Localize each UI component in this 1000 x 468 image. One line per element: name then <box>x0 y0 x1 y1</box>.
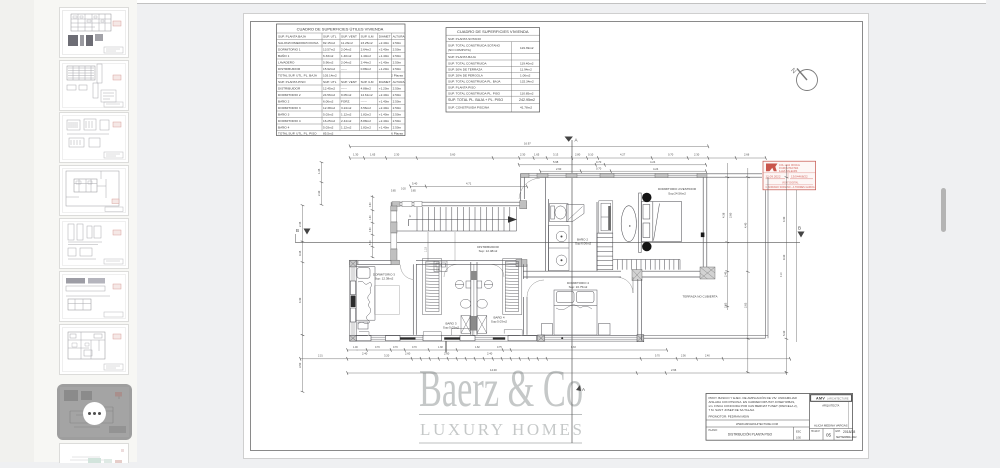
svg-text:+2.40m: +2.40m <box>379 119 390 123</box>
svg-text:A: A <box>582 387 585 392</box>
svg-text:SUP. UTL: SUP. UTL <box>323 80 337 84</box>
svg-text:SUP. TOTAL CONSTRUIDA SOTANO: SUP. TOTAL CONSTRUIDA SOTANO <box>448 44 501 48</box>
svg-text:5.30: 5.30 <box>782 330 786 336</box>
svg-text:2.50m: 2.50m <box>393 113 402 117</box>
svg-text:6.33m2: 6.33m2 <box>323 54 334 58</box>
svg-text:11.23m2: 11.23m2 <box>341 41 353 45</box>
svg-text:+1.20m: +1.20m <box>379 67 390 71</box>
svg-text:4.88m2: 4.88m2 <box>361 87 372 91</box>
svg-text:Sup: 12.38m2: Sup: 12.38m2 <box>375 277 394 281</box>
svg-text:13/04468/22: 13/04468/22 <box>791 175 808 179</box>
svg-text:0.40: 0.40 <box>370 202 372 207</box>
svg-text:TERRAZA NO CUBIERTA: TERRAZA NO CUBIERTA <box>683 295 718 299</box>
svg-text:DORMITORIO 4: DORMITORIO 4 <box>278 119 301 123</box>
svg-text:0.70: 0.70 <box>596 160 602 164</box>
svg-text:SUP. CONSTRUIDA PISCINA: SUP. CONSTRUIDA PISCINA <box>448 106 490 110</box>
svg-text:LUXURY HOMES: LUXURY HOMES <box>420 420 582 439</box>
svg-text:13.57m2: 13.57m2 <box>323 48 335 52</box>
svg-text:2.04m2: 2.04m2 <box>341 61 352 65</box>
svg-text:EXP.: EXP. <box>836 431 841 433</box>
svg-text:AMV: AMV <box>816 397 825 401</box>
svg-text:0.10: 0.10 <box>588 153 594 157</box>
svg-text:+1.40m: +1.40m <box>379 113 390 117</box>
svg-text:2.30: 2.30 <box>694 153 700 157</box>
svg-text:SUP. UTL: SUP. UTL <box>323 35 337 39</box>
svg-text:DORMITORIO 1: DORMITORIO 1 <box>278 48 301 52</box>
svg-text:4.71: 4.71 <box>466 181 472 185</box>
svg-text:------: ------ <box>341 67 347 71</box>
svg-text:9.05m2: 9.05m2 <box>341 93 352 97</box>
svg-text:103.14m2: 103.14m2 <box>323 74 337 78</box>
svg-text:DISTRIBUCIÓN PLANTA PISO: DISTRIBUCIÓN PLANTA PISO <box>728 432 773 437</box>
svg-text:2.50m: 2.50m <box>393 106 402 110</box>
svg-text:BAÑO 3: BAÑO 3 <box>278 112 290 117</box>
svg-text:11.94m2: 11.94m2 <box>520 68 532 72</box>
svg-text:2.40: 2.40 <box>724 271 728 277</box>
svg-text:C.SORIANO SORIANO - A.TORRES G: C.SORIANO SORIANO - A.TORRES GARCIA <box>766 186 816 189</box>
svg-text:5.03m2: 5.03m2 <box>323 126 334 130</box>
svg-text:Sup:6.06m2: Sup:6.06m2 <box>575 242 592 246</box>
svg-text:Baerz & Co: Baerz & Co <box>419 360 583 418</box>
svg-text:0.20: 0.20 <box>401 188 406 191</box>
svg-text:5.85: 5.85 <box>391 190 396 193</box>
svg-text:2.50m: 2.50m <box>393 61 402 65</box>
svg-text:5.40: 5.40 <box>370 240 372 245</box>
svg-text:2.63: 2.63 <box>744 302 748 308</box>
svg-text:2.96: 2.96 <box>671 368 677 372</box>
svg-text:16.97: 16.97 <box>524 142 531 146</box>
svg-text:SUP. TOTAL CONSTRUIDA: SUP. TOTAL CONSTRUIDA <box>448 61 487 65</box>
svg-text:2.44m2: 2.44m2 <box>341 119 352 123</box>
svg-text:0.35: 0.35 <box>298 250 302 256</box>
svg-text:------: ------ <box>341 87 347 91</box>
svg-text:1.35: 1.35 <box>317 168 321 174</box>
svg-text:0.70: 0.70 <box>393 346 398 349</box>
svg-text:2.50m: 2.50m <box>393 126 402 130</box>
svg-text:5.03m2: 5.03m2 <box>323 113 334 117</box>
svg-text:ALTURA: ALTURA <box>393 35 406 39</box>
svg-text:119.40m2: 119.40m2 <box>520 61 534 65</box>
svg-text:2.50m: 2.50m <box>393 87 402 91</box>
svg-text:8.88m2: 8.88m2 <box>361 119 372 123</box>
svg-text:PLANO:: PLANO: <box>709 429 718 432</box>
svg-text:4.40: 4.40 <box>744 222 748 228</box>
svg-text:B: B <box>798 226 801 231</box>
svg-text:4.38: 4.38 <box>722 212 726 218</box>
svg-text:8.33: 8.33 <box>571 346 576 349</box>
svg-text:14.61m2: 14.61m2 <box>361 93 373 97</box>
svg-text:N: N <box>789 67 797 75</box>
svg-text:WWW.AMVARCHITECTURE.COM: WWW.AMVARCHITECTURE.COM <box>736 422 779 426</box>
svg-text:Sup: 12.48m2: Sup: 12.48m2 <box>479 249 498 253</box>
svg-text:2 Plazas: 2 Plazas <box>391 74 403 78</box>
svg-text:SUP. PLANTA PISO: SUP. PLANTA PISO <box>448 86 476 90</box>
svg-text:2.63: 2.63 <box>724 302 728 308</box>
svg-text:2.80: 2.80 <box>575 153 581 157</box>
svg-text:242.95m2: 242.95m2 <box>519 98 535 102</box>
svg-text:1/50: 1/50 <box>796 436 801 439</box>
svg-text:A: A <box>575 138 578 143</box>
svg-text:ALICIA MEDINA VARGAS: ALICIA MEDINA VARGAS <box>814 424 848 428</box>
svg-text:DORMITORIO 2/VESTIDOR: DORMITORIO 2/VESTIDOR <box>658 187 697 191</box>
svg-text:17: 17 <box>408 214 412 217</box>
svg-text:DORMITORIO 2: DORMITORIO 2 <box>278 93 301 97</box>
svg-text:2.45: 2.45 <box>298 221 302 227</box>
svg-text:1.12m2: 1.12m2 <box>341 126 352 130</box>
svg-text:2.60: 2.60 <box>444 352 450 356</box>
svg-text:Sup: 16.75m2: Sup: 16.75m2 <box>569 285 588 289</box>
svg-text:CUADRO DE SUPERFICIES ÚTILES V: CUADRO DE SUPERFICIES ÚTILES VIVIENDA <box>297 27 384 32</box>
svg-text:4.40: 4.40 <box>298 297 302 303</box>
svg-text:BAÑO 1: BAÑO 1 <box>278 53 290 58</box>
svg-text:2.50m: 2.50m <box>393 67 402 71</box>
svg-text:SUP. TOTAL CONSTRUIDA PL. PISO: SUP. TOTAL CONSTRUIDA PL. PISO <box>448 92 501 96</box>
svg-text:1.82m2: 1.82m2 <box>361 126 372 130</box>
svg-text:4.27: 4.27 <box>620 153 626 157</box>
svg-text:(NO COMPUTA): (NO COMPUTA) <box>448 48 471 52</box>
svg-text:2.30: 2.30 <box>317 190 321 196</box>
svg-text:132.34m2: 132.34m2 <box>520 80 534 84</box>
svg-text:2.60: 2.60 <box>729 212 733 218</box>
svg-text:15.92m2: 15.92m2 <box>323 67 335 71</box>
svg-text:1.00: 1.00 <box>353 346 358 349</box>
svg-text:SUP. ILM: SUP. ILM <box>361 80 374 84</box>
svg-text:0.10: 0.10 <box>781 272 783 277</box>
svg-text:SALON/COMEDOR/COCINA: SALON/COMEDOR/COCINA <box>278 41 319 45</box>
svg-text:2.40: 2.40 <box>362 352 368 356</box>
svg-text:4.24: 4.24 <box>650 160 656 164</box>
svg-text:SUP. TOTAL CONSTRUIDA PL. BAJA: SUP. TOTAL CONSTRUIDA PL. BAJA <box>448 80 501 84</box>
svg-text:SUP. 20% DE PERGOLA: SUP. 20% DE PERGOLA <box>448 74 484 78</box>
svg-text:SUP. VENT: SUP. VENT <box>341 80 357 84</box>
svg-text:SUP. PLANTA SOTANO: SUP. PLANTA SOTANO <box>448 37 482 41</box>
svg-text:2.64m2: 2.64m2 <box>361 48 372 52</box>
svg-text:2.50m: 2.50m <box>393 54 402 58</box>
svg-text:85.5m2: 85.5m2 <box>323 132 334 136</box>
svg-text:2.31: 2.31 <box>318 355 323 358</box>
svg-text:2.60: 2.60 <box>556 167 562 171</box>
svg-text:2018/28: 2018/28 <box>843 430 855 434</box>
svg-text:B: B <box>296 228 299 233</box>
svg-text:2.04m2: 2.04m2 <box>341 48 352 52</box>
svg-text:12.38m2: 12.38m2 <box>323 106 335 110</box>
svg-text:Sup:5.03m2: Sup:5.03m2 <box>491 320 508 324</box>
svg-text:1.10: 1.10 <box>425 247 428 252</box>
svg-text:1.40m2: 1.40m2 <box>341 54 352 58</box>
svg-text:0.75: 0.75 <box>497 346 502 349</box>
svg-text:DORMITORIO 3: DORMITORIO 3 <box>278 106 301 110</box>
svg-text:+1.40m: +1.40m <box>379 126 390 130</box>
svg-text:82.15m2: 82.15m2 <box>323 41 335 45</box>
svg-text:4.24: 4.24 <box>653 167 659 171</box>
svg-text:CSL: CSL <box>436 269 441 272</box>
svg-text:3.50: 3.50 <box>298 362 302 368</box>
svg-text:5.85: 5.85 <box>411 190 416 193</box>
svg-text:12.45m2: 12.45m2 <box>323 87 335 91</box>
svg-text:+2.40m: +2.40m <box>379 41 390 45</box>
svg-text:+1.40m: +1.40m <box>379 54 390 58</box>
svg-text:+2.40m: +2.40m <box>379 93 390 97</box>
svg-text:3.13: 3.13 <box>553 153 559 157</box>
svg-text:5.60: 5.60 <box>450 153 456 157</box>
svg-text:2.50m: 2.50m <box>393 100 402 104</box>
svg-text:SEPTIEMBRE 2022: SEPTIEMBRE 2022 <box>836 437 857 439</box>
svg-text:1.06m2: 1.06m2 <box>520 74 531 78</box>
svg-text:ESC: ESC <box>796 430 801 433</box>
svg-text:3.20: 3.20 <box>384 354 390 358</box>
svg-text:SUP. PLANTA BAJA: SUP. PLANTA BAJA <box>278 35 307 39</box>
svg-text:| ARCHITECTURE: | ARCHITECTURE <box>827 396 849 400</box>
svg-text:+1.40m: +1.40m <box>379 100 390 104</box>
svg-text:DISTRIBUIDOR: DISTRIBUIDOR <box>278 87 301 91</box>
svg-text:14.00: 14.00 <box>490 368 497 372</box>
svg-text:+1.20m: +1.20m <box>379 87 390 91</box>
svg-text:Sup:24.56m2: Sup:24.56m2 <box>668 192 686 196</box>
svg-text:2.60: 2.60 <box>405 352 411 356</box>
svg-text:1.38: 1.38 <box>438 346 443 349</box>
svg-text:0.70: 0.70 <box>375 346 380 349</box>
svg-text:23.25m2: 23.25m2 <box>361 41 373 45</box>
svg-text:119.39m2: 119.39m2 <box>520 46 534 50</box>
svg-text:2.50m: 2.50m <box>393 48 402 52</box>
svg-text:5.96m2: 5.96m2 <box>323 61 334 65</box>
svg-text:1.40: 1.40 <box>370 215 372 220</box>
svg-text:2.50m: 2.50m <box>393 93 402 97</box>
svg-text:05: 05 <box>826 433 832 438</box>
svg-text:7 M. SANT JOSEP DE SA TALAIA: 7 M. SANT JOSEP DE SA TALAIA <box>709 408 755 412</box>
svg-text:0.88m2: 0.88m2 <box>361 67 372 71</box>
svg-text:5.70: 5.70 <box>655 355 660 358</box>
svg-text:2.40: 2.40 <box>705 355 710 358</box>
svg-text:2.44m2: 2.44m2 <box>361 61 372 65</box>
svg-text:FORZ.: FORZ. <box>341 100 350 104</box>
svg-text:1.12m2: 1.12m2 <box>341 113 352 117</box>
svg-text:41.78m2: 41.78m2 <box>520 106 532 110</box>
svg-text:2.56: 2.56 <box>681 355 686 358</box>
svg-text:4.40: 4.40 <box>782 216 786 222</box>
svg-text:3.56m2: 3.56m2 <box>361 106 372 110</box>
svg-text:1.40m2: 1.40m2 <box>361 54 372 58</box>
svg-text:1.65: 1.65 <box>534 153 540 157</box>
svg-text:110.85m2: 110.85m2 <box>520 92 534 96</box>
svg-text:PROMOTOR: PEDRAM MDIN: PROMOTOR: PEDRAM MDIN <box>709 415 750 419</box>
svg-text:BAÑO 2: BAÑO 2 <box>278 99 290 104</box>
svg-text:2.40: 2.40 <box>487 352 493 356</box>
svg-text:DIAMET: DIAMET <box>379 80 391 84</box>
svg-text:0.70: 0.70 <box>412 346 417 349</box>
svg-text:5.98: 5.98 <box>553 160 559 164</box>
svg-text:0.70: 0.70 <box>668 153 674 157</box>
svg-text:SUP. TOTAL PL. BAJA + PL. PISO: SUP. TOTAL PL. BAJA + PL. PISO <box>448 98 503 102</box>
svg-text:TOTAL SUP. UTL. PL. PISO: TOTAL SUP. UTL. PL. PISO <box>278 132 317 136</box>
svg-text:1.82m2: 1.82m2 <box>361 113 372 117</box>
svg-text:DISTRIBUIDOR: DISTRIBUIDOR <box>278 67 301 71</box>
svg-text:2.50m: 2.50m <box>393 119 402 123</box>
svg-text:SUP. PLANTA PISO: SUP. PLANTA PISO <box>278 80 306 84</box>
svg-text:CUADRO DE SUPERFICIES VIVIENDA: CUADRO DE SUPERFICIES VIVIENDA <box>457 29 529 34</box>
svg-text:1.82: 1.82 <box>475 346 480 349</box>
svg-text:2.66: 2.66 <box>744 153 750 157</box>
svg-text:BAÑO 4: BAÑO 4 <box>278 125 290 130</box>
svg-text:------: ------ <box>361 100 367 104</box>
svg-text:SUP. PLANTA BAJA: SUP. PLANTA BAJA <box>448 55 477 59</box>
svg-text:16.25m2: 16.25m2 <box>323 119 335 123</box>
svg-text:ALTURA: ALTURA <box>393 80 406 84</box>
svg-text:+2.40m: +2.40m <box>379 106 390 110</box>
svg-text:0.70: 0.70 <box>596 166 602 170</box>
svg-text:+1.40m: +1.40m <box>379 61 390 65</box>
svg-text:3.24m2: 3.24m2 <box>341 106 352 110</box>
svg-text:0.40: 0.40 <box>370 227 372 232</box>
svg-text:24.56m2: 24.56m2 <box>323 93 335 97</box>
svg-text:9.30: 9.30 <box>782 254 786 260</box>
svg-text:LAVADERO: LAVADERO <box>278 61 295 65</box>
svg-text:1.65: 1.65 <box>370 153 376 157</box>
svg-text:6.06m2: 6.06m2 <box>323 100 334 104</box>
svg-text:2.30: 2.30 <box>394 153 400 157</box>
svg-text:VISAT DIGITAL: VISAT DIGITAL <box>782 182 799 185</box>
svg-text:+2.40m: +2.40m <box>379 48 390 52</box>
svg-text:2.50m: 2.50m <box>393 41 402 45</box>
svg-text:SUP. 50% DE TERRAZA: SUP. 50% DE TERRAZA <box>448 68 483 72</box>
svg-text:DIAMET: DIAMET <box>379 35 391 39</box>
svg-text:1.30: 1.30 <box>353 153 359 157</box>
svg-text:TOTAL SUP. UTL. PL. BAJA: TOTAL SUP. UTL. PL. BAJA <box>278 74 318 78</box>
svg-text:SUP. VENT: SUP. VENT <box>341 35 357 39</box>
svg-text:ARQUITECTA: ARQUITECTA <box>822 404 839 408</box>
svg-text:6 Plazas: 6 Plazas <box>391 132 403 136</box>
svg-text:Sup:5.03m2: Sup:5.03m2 <box>443 326 460 330</box>
svg-text:5.40: 5.40 <box>412 181 418 185</box>
svg-text:2.30: 2.30 <box>520 153 526 157</box>
svg-text:SUP. ILM: SUP. ILM <box>361 35 374 39</box>
svg-text:ILLES BALEARS: ILLES BALEARS <box>779 170 798 173</box>
